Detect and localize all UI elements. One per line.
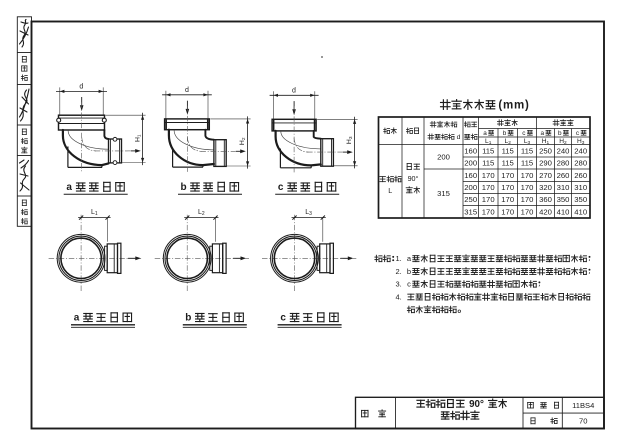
svg-text:170: 170 xyxy=(482,207,495,216)
svg-text:280: 280 xyxy=(557,159,570,168)
svg-text:d: d xyxy=(79,83,83,90)
svg-text:410: 410 xyxy=(557,207,570,216)
svg-text:(mm): (mm) xyxy=(498,100,529,112)
svg-text:b: b xyxy=(407,267,411,276)
svg-text:250: 250 xyxy=(464,195,477,204)
svg-text:d: d xyxy=(185,87,189,94)
svg-text:200: 200 xyxy=(437,153,450,162)
svg-text:315: 315 xyxy=(464,207,477,216)
svg-text:360: 360 xyxy=(539,195,552,204)
svg-text:L3: L3 xyxy=(305,209,312,217)
svg-text:a: a xyxy=(74,313,80,324)
svg-text:c: c xyxy=(280,313,286,324)
svg-text:240: 240 xyxy=(557,146,570,155)
svg-text:90°: 90° xyxy=(469,399,484,410)
svg-text:115: 115 xyxy=(502,146,514,155)
svg-text:310: 310 xyxy=(557,183,570,192)
svg-text:70: 70 xyxy=(579,416,587,425)
svg-text:410: 410 xyxy=(574,207,587,216)
svg-text:170: 170 xyxy=(501,183,514,192)
svg-text:d: d xyxy=(457,134,461,141)
svg-text:260: 260 xyxy=(574,171,587,180)
svg-text:4.: 4. xyxy=(396,292,402,301)
svg-text:260: 260 xyxy=(557,171,570,180)
svg-text:b: b xyxy=(558,130,562,137)
svg-text:270: 270 xyxy=(539,171,552,180)
svg-text:115: 115 xyxy=(502,159,514,168)
svg-text:280: 280 xyxy=(574,159,587,168)
svg-text:290: 290 xyxy=(539,159,552,168)
svg-text:170: 170 xyxy=(521,171,534,180)
svg-text:c: c xyxy=(407,280,411,289)
svg-text:L2: L2 xyxy=(198,209,205,217)
svg-text:1.: 1. xyxy=(396,254,402,263)
svg-text:b: b xyxy=(503,130,507,137)
svg-text:a: a xyxy=(66,182,72,193)
svg-text:170: 170 xyxy=(482,171,495,180)
svg-text:310: 310 xyxy=(574,183,587,192)
svg-text:L1: L1 xyxy=(91,209,98,217)
svg-text:115: 115 xyxy=(521,159,533,168)
svg-text:a: a xyxy=(483,130,487,137)
svg-text:170: 170 xyxy=(482,183,495,192)
svg-text:170: 170 xyxy=(521,183,534,192)
svg-text:170: 170 xyxy=(482,195,495,204)
svg-text:350: 350 xyxy=(557,195,570,204)
svg-text:170: 170 xyxy=(501,171,514,180)
svg-text:160: 160 xyxy=(464,171,477,180)
svg-text:90°: 90° xyxy=(408,174,419,183)
svg-text:a: a xyxy=(541,130,545,137)
svg-text:11BS4: 11BS4 xyxy=(572,401,594,410)
svg-text:d: d xyxy=(292,87,296,94)
svg-text:160: 160 xyxy=(464,146,477,155)
svg-text:c: c xyxy=(278,182,284,193)
svg-text:350: 350 xyxy=(574,195,587,204)
svg-text:115: 115 xyxy=(482,159,494,168)
svg-text:3.: 3. xyxy=(396,280,402,289)
svg-text:170: 170 xyxy=(501,195,514,204)
svg-text:320: 320 xyxy=(539,183,552,192)
svg-text:250: 250 xyxy=(539,146,552,155)
svg-text:200: 200 xyxy=(464,183,477,192)
svg-text:200: 200 xyxy=(464,159,477,168)
svg-text:315: 315 xyxy=(437,189,450,198)
svg-text:b: b xyxy=(185,313,191,324)
svg-text:115: 115 xyxy=(482,146,494,155)
svg-text:420: 420 xyxy=(539,207,552,216)
svg-text:170: 170 xyxy=(521,207,534,216)
svg-text:2.: 2. xyxy=(396,267,402,276)
svg-text:b: b xyxy=(180,182,186,193)
svg-text:170: 170 xyxy=(501,207,514,216)
svg-text:115: 115 xyxy=(521,146,533,155)
svg-text:L: L xyxy=(388,186,392,195)
svg-text:170: 170 xyxy=(521,195,534,204)
svg-text:240: 240 xyxy=(574,146,587,155)
